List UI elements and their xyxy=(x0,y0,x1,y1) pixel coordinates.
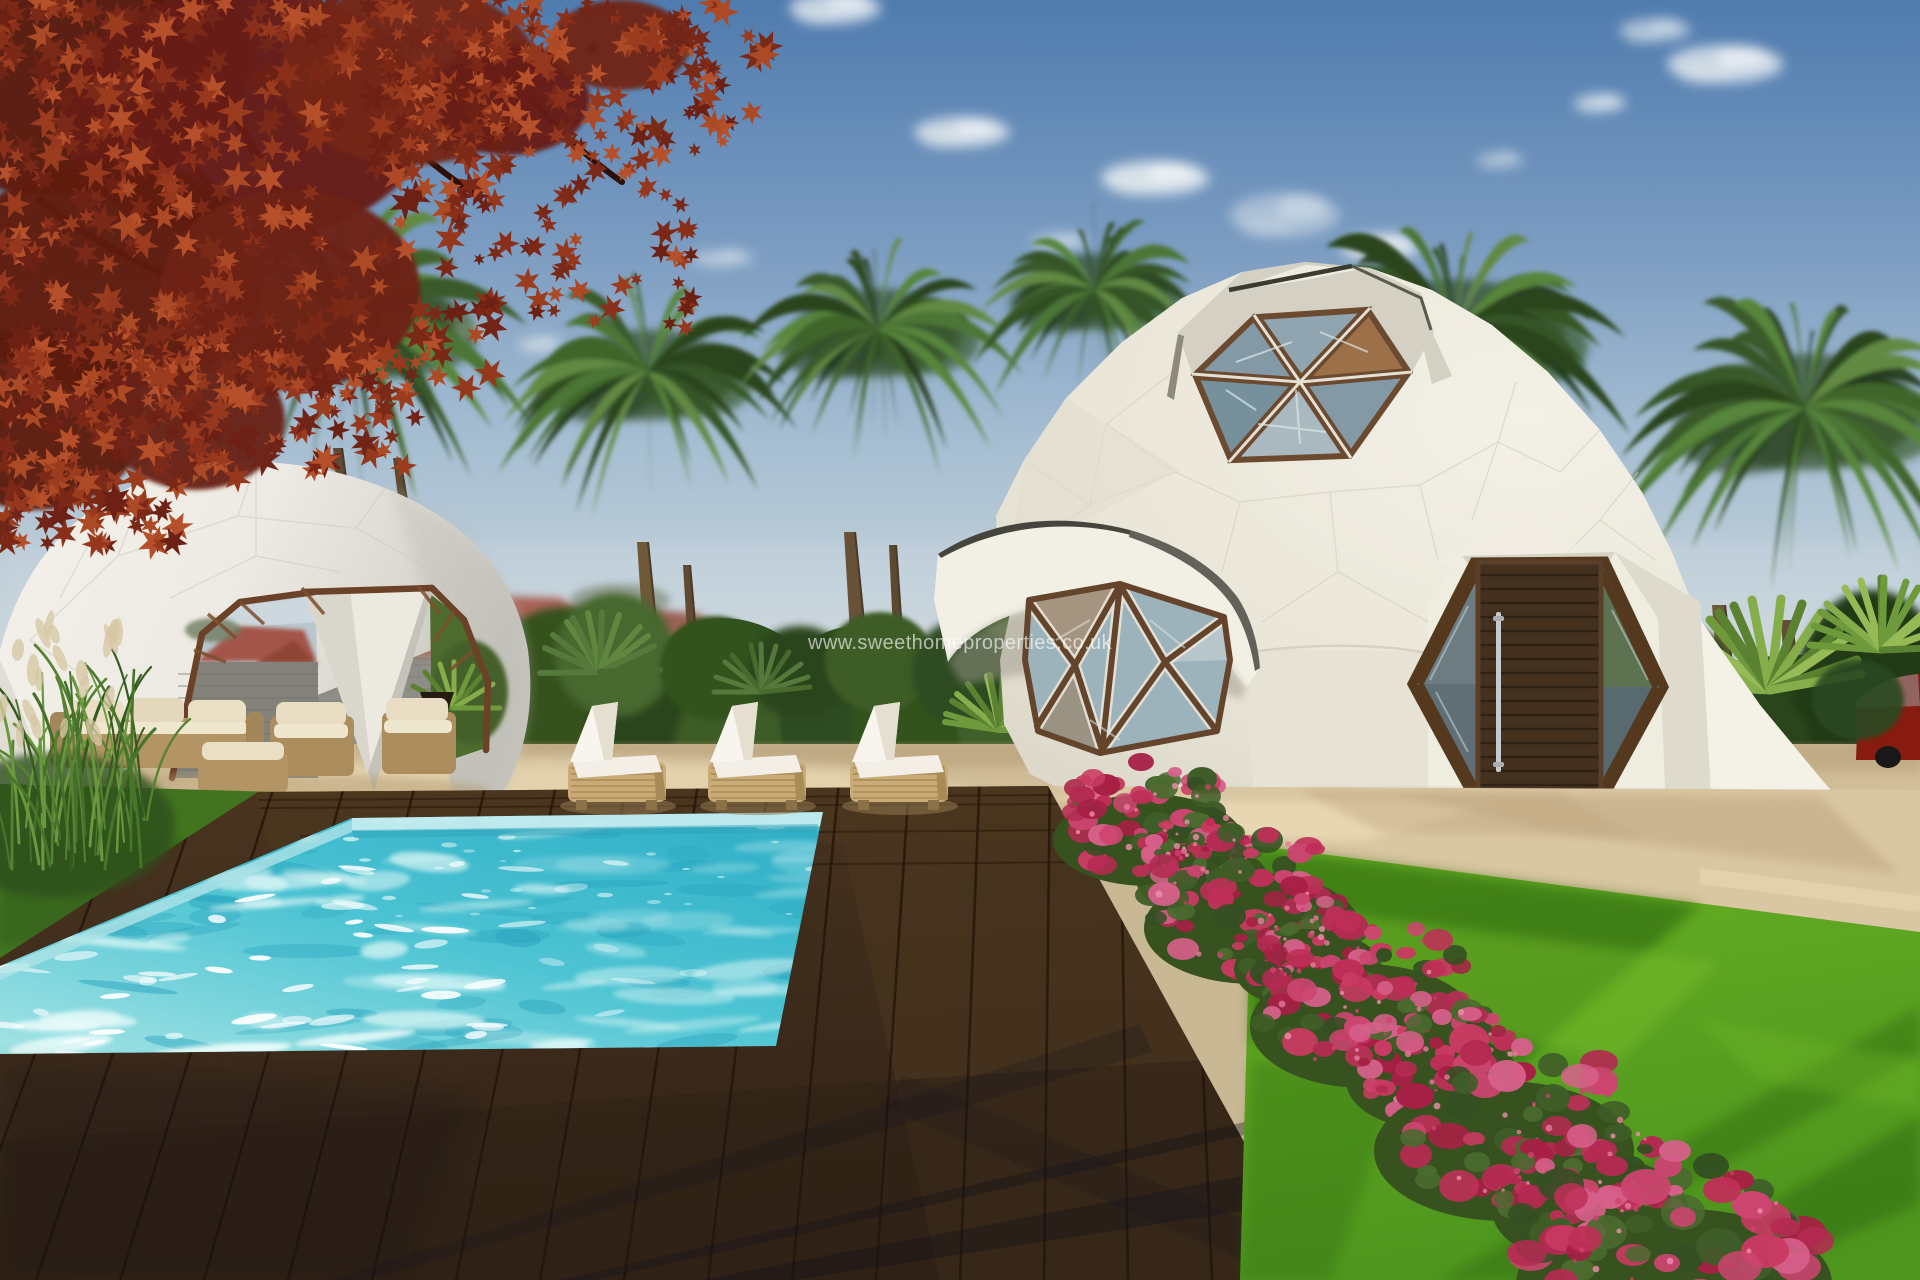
svg-text:www.sweethomeproperties.co.uk: www.sweethomeproperties.co.uk xyxy=(807,632,1113,654)
